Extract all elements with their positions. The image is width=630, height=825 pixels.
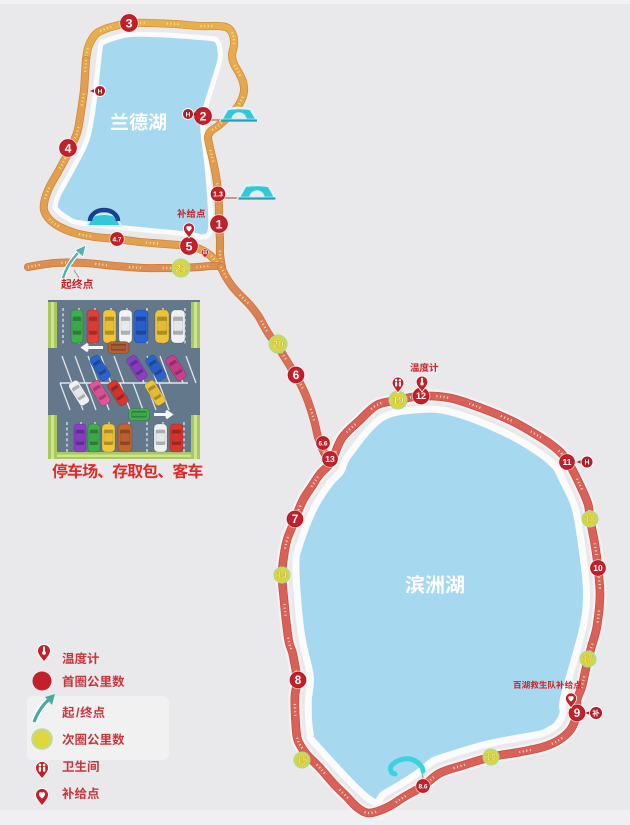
svg-text:5: 5 — [186, 239, 193, 253]
svg-text:10: 10 — [593, 563, 603, 573]
svg-text:8.6: 8.6 — [418, 783, 427, 790]
svg-text:1.3: 1.3 — [213, 192, 223, 199]
svg-text:16: 16 — [486, 752, 496, 762]
svg-text:2: 2 — [200, 109, 207, 123]
svg-text:19: 19 — [392, 396, 404, 407]
svg-text:1: 1 — [216, 217, 223, 231]
svg-text:7: 7 — [292, 513, 298, 526]
svg-text:8: 8 — [295, 674, 302, 687]
svg-text:6.6: 6.6 — [318, 440, 327, 447]
svg-text:H: H — [584, 460, 589, 467]
svg-text:3: 3 — [126, 16, 133, 30]
svg-text:21: 21 — [175, 264, 187, 275]
svg-text:11: 11 — [563, 457, 572, 467]
svg-text:H: H — [186, 111, 191, 118]
svg-text:9: 9 — [574, 707, 581, 720]
svg-text:12: 12 — [416, 391, 426, 401]
svg-text:/: / — [76, 706, 80, 720]
svg-text:20: 20 — [272, 340, 284, 351]
svg-text:H: H — [98, 88, 103, 95]
svg-text:13: 13 — [325, 454, 335, 464]
svg-text:14: 14 — [277, 570, 287, 580]
svg-text:17: 17 — [583, 654, 593, 664]
svg-text:18: 18 — [585, 514, 595, 524]
svg-text:6: 6 — [293, 369, 300, 382]
svg-text:4: 4 — [65, 141, 72, 155]
svg-text:15: 15 — [297, 755, 307, 765]
svg-text:4.7: 4.7 — [112, 236, 121, 243]
